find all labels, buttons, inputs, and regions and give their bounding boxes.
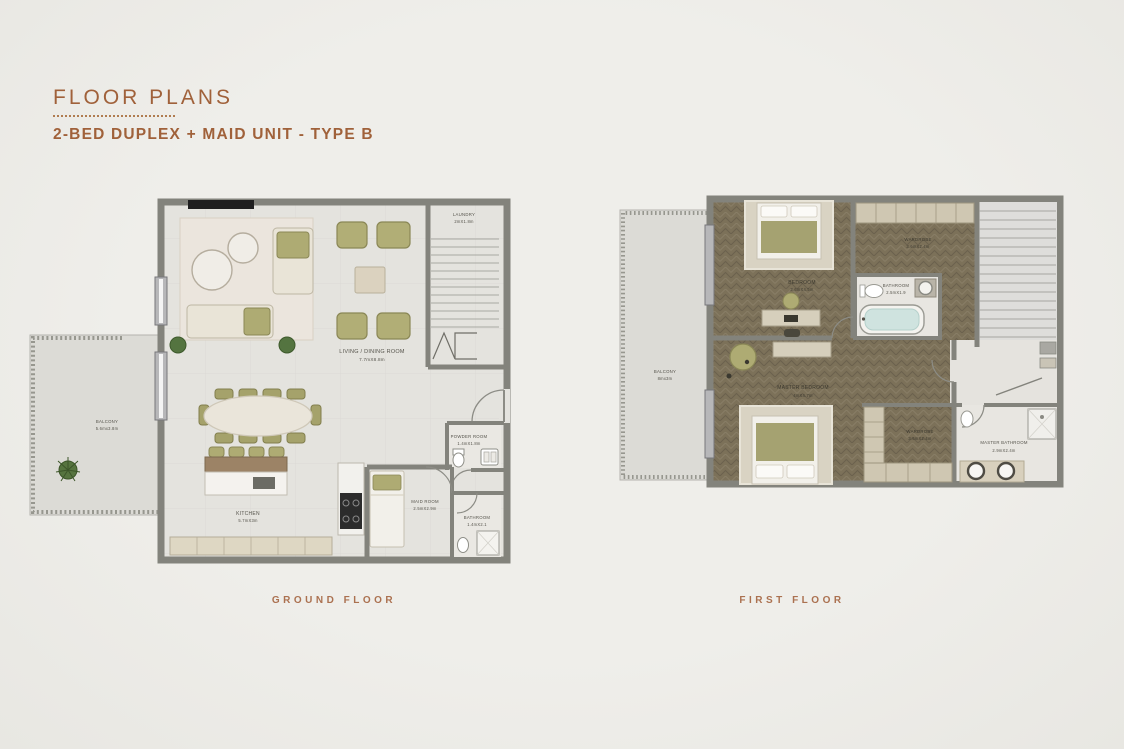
washbasin-icon bbox=[915, 279, 936, 297]
kitchen-island-icon bbox=[205, 457, 287, 495]
ff-master-bedroom-label: MASTER BEDROOM bbox=[777, 385, 829, 391]
ff-balcony-dims: 8mx3m bbox=[658, 376, 673, 381]
ff-wardrobe-top-dims: 3.6mX2.4m bbox=[906, 244, 930, 249]
gf-balcony-label: BALCONY bbox=[96, 419, 118, 424]
ff-master-bathroom-label: MASTER BATHROOM bbox=[980, 440, 1028, 445]
ff-balcony: BALCONY 8mx3m bbox=[620, 210, 707, 480]
kitchen-cabinets-icon bbox=[170, 537, 332, 555]
ff-balcony-label: BALCONY bbox=[654, 369, 676, 374]
gf-maid-label: MAID ROOM bbox=[411, 499, 439, 504]
coffee-table-icon bbox=[192, 250, 232, 290]
sink-icon bbox=[481, 449, 498, 465]
ff-stair-floor bbox=[977, 202, 1057, 348]
page-title: FLOOR PLANS bbox=[53, 86, 374, 110]
ff-wardrobe-bottom-label: WARDROBE bbox=[906, 429, 933, 434]
maid-bed-icon bbox=[370, 471, 404, 547]
gf-kitchen-dims: 5.7mX3m bbox=[238, 518, 258, 523]
ground-floor-caption: GROUND FLOOR bbox=[234, 595, 434, 606]
ff-master-bathroom-dims: 2.9mX2.4m bbox=[992, 448, 1016, 453]
chaise-sofa-icon bbox=[273, 228, 313, 294]
ff-master-bedroom-dims: 4mX4.7m bbox=[793, 393, 813, 398]
dining-table-icon bbox=[199, 389, 321, 443]
hall-closet-icon bbox=[1040, 342, 1056, 354]
first-floor-caption: FIRST FLOOR bbox=[692, 595, 892, 606]
toilet-icon bbox=[860, 285, 883, 298]
gf-balcony-dims: 5.6mx3.8m bbox=[96, 426, 119, 431]
gf-kitchen-label: KITCHEN bbox=[236, 511, 260, 517]
ff-bedroom-dims: 3.6mX4.5m bbox=[790, 287, 814, 292]
page-subtitle: 2-BED DUPLEX + MAID UNIT - TYPE B bbox=[53, 126, 374, 144]
gf-bathroom-dims: 1.4mX2.1 bbox=[467, 522, 487, 527]
gf-powder-dims: 1.4mX1.8m bbox=[457, 441, 481, 446]
sofa-icon bbox=[187, 305, 273, 338]
gf-living-label: LIVING / DINING ROOM bbox=[339, 349, 405, 355]
gf-bathroom: BATHROOM 1.4mX2.1 bbox=[452, 493, 504, 557]
header: FLOOR PLANS 2-BED DUPLEX + MAID UNIT - T… bbox=[53, 86, 374, 144]
ground-floor-plan: BALCONY 5.6mx3.8m bbox=[25, 193, 545, 570]
double-sink-icon bbox=[960, 461, 1024, 482]
ff-bathroom-dims: 2.5mX1.9 bbox=[886, 290, 906, 295]
gf-laundry-dims: 2mX1.8m bbox=[454, 219, 474, 224]
ff-bathroom-label: BATHROOM bbox=[883, 283, 910, 288]
shower-icon bbox=[1028, 409, 1056, 439]
desk-icon bbox=[773, 342, 831, 357]
bathtub-icon bbox=[860, 305, 924, 334]
side-table-icon bbox=[228, 233, 258, 263]
toilet-icon bbox=[458, 538, 469, 553]
title-dotted-divider bbox=[53, 115, 175, 117]
ff-wardrobe-bottom-dims: 3.6mX2.4m bbox=[908, 436, 932, 441]
first-floor-plan: BALCONY 8mx3m bbox=[610, 190, 1070, 500]
toilet-icon bbox=[453, 449, 464, 467]
gf-laundry-label: LAUNDRY bbox=[453, 212, 475, 217]
ff-wardrobe-top-label: WARDROBE bbox=[904, 237, 931, 242]
gf-balcony: BALCONY 5.6mx3.8m bbox=[30, 335, 160, 515]
gf-powder-label: POWDER ROOM bbox=[451, 434, 488, 439]
bed-icon bbox=[752, 416, 818, 484]
gf-bathroom-label: BATHROOM bbox=[464, 515, 491, 520]
bed-icon bbox=[757, 203, 821, 259]
gf-maid-dims: 2.5mX2.9m bbox=[413, 506, 437, 511]
ff-bedroom-label: BEDROOM bbox=[788, 280, 816, 286]
toilet-icon bbox=[961, 411, 973, 427]
gf-living-dims: 7.7mX8.8m bbox=[359, 357, 385, 362]
tv-console-icon bbox=[188, 200, 254, 209]
shower-icon bbox=[477, 531, 499, 555]
cooktop-column-icon bbox=[338, 463, 364, 535]
hall-closet-icon bbox=[1040, 358, 1056, 368]
